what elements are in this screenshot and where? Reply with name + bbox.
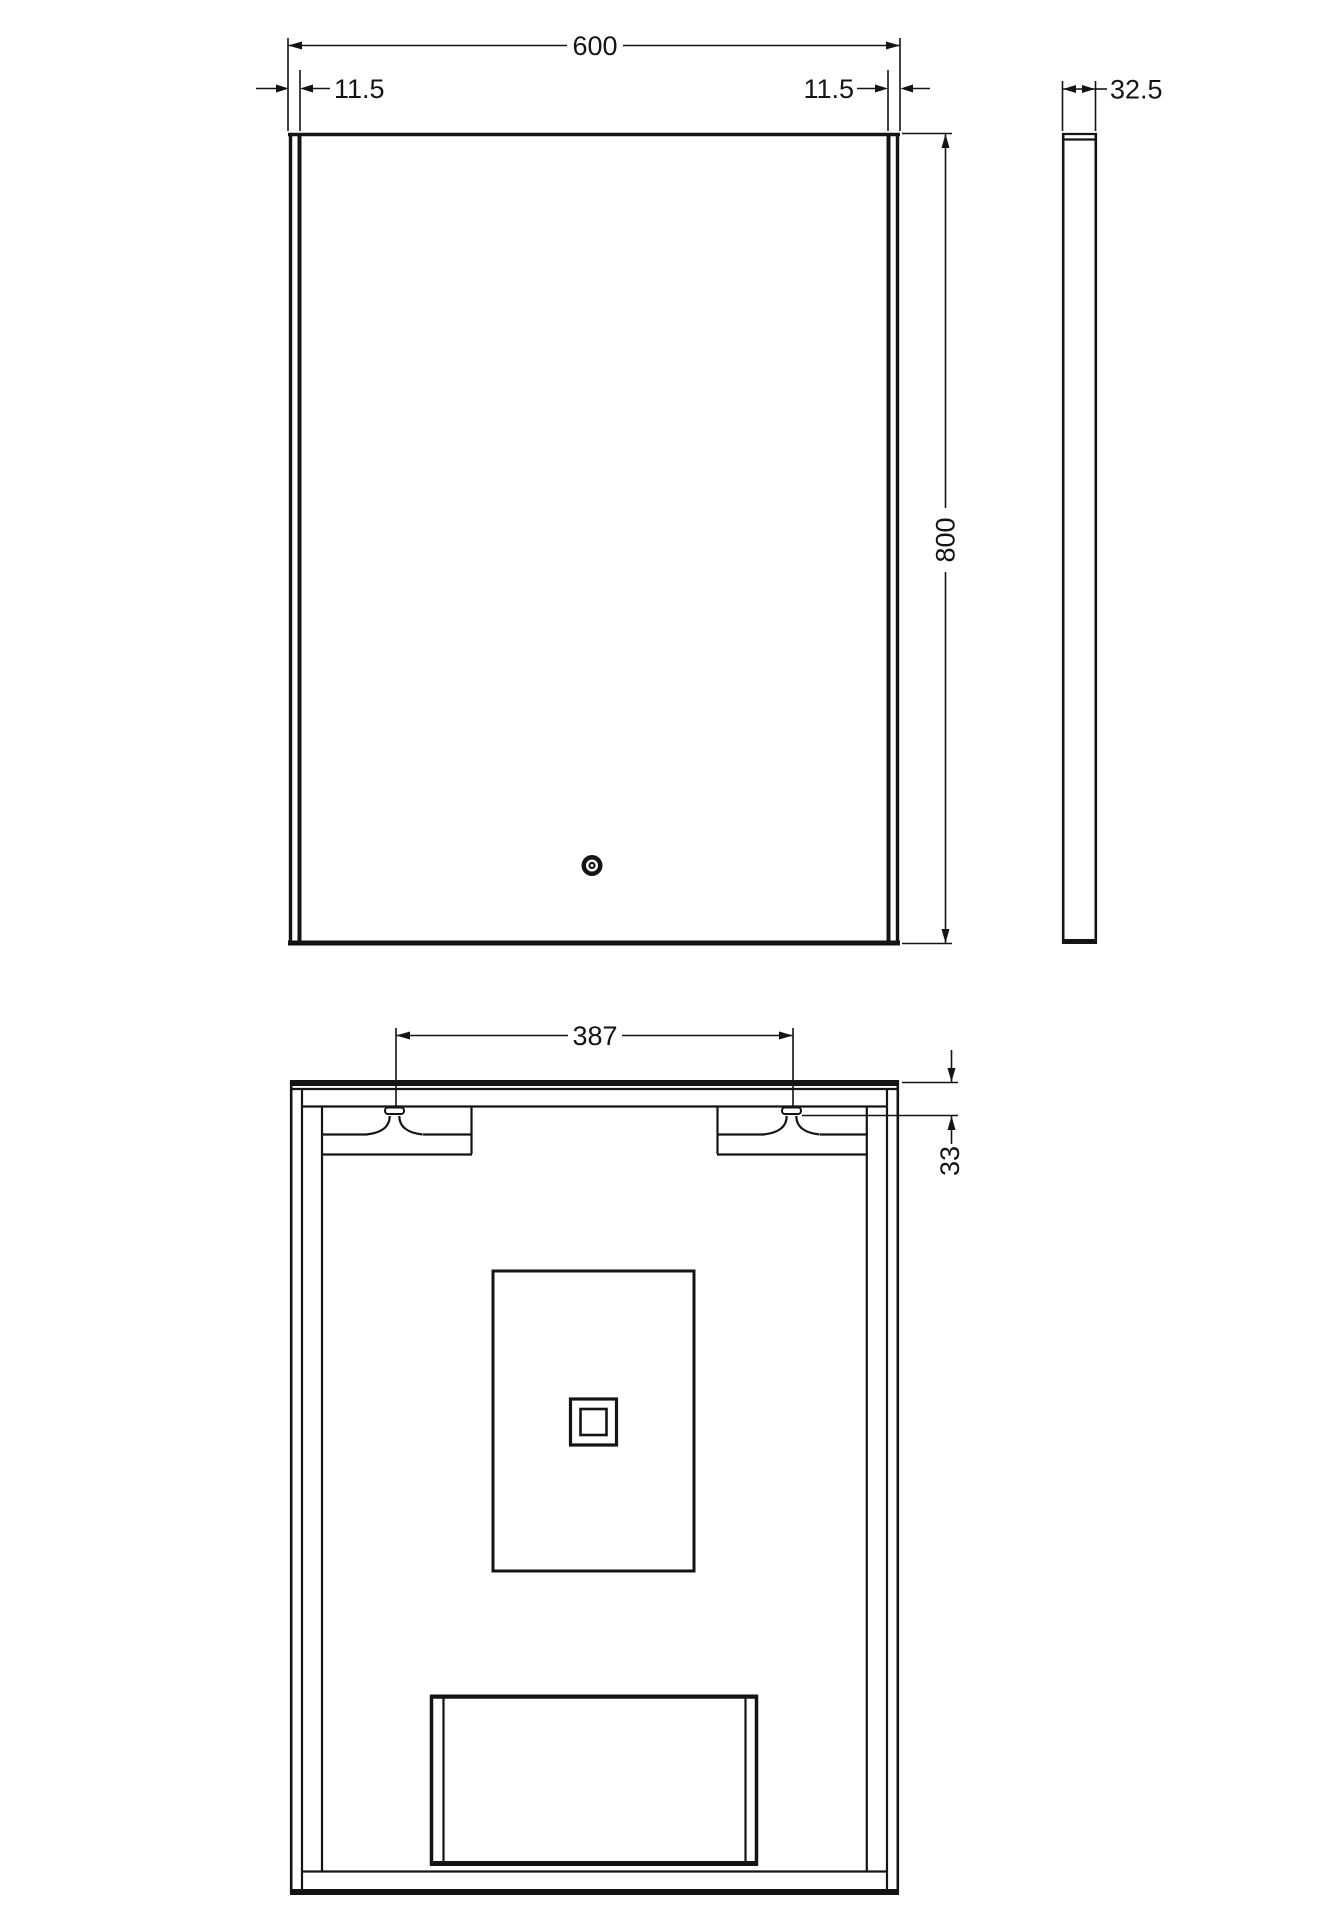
arrowhead-down — [948, 1068, 956, 1082]
bracket-plate-left — [321, 1106, 472, 1155]
back-top-bar — [290, 1080, 899, 1086]
arrowhead-left — [300, 85, 313, 93]
mirror-three-view-drawing: 600 11.5 11.5 800 — [0, 0, 1328, 1922]
arrowhead-right — [779, 1032, 793, 1040]
junction-box-outline — [493, 1271, 694, 1571]
cable-outlet-inner-square — [581, 1409, 607, 1435]
hanging-hook-icon — [764, 1108, 820, 1135]
dim-front-height: 800 — [902, 134, 961, 944]
arrowhead-left — [1063, 85, 1076, 93]
driver-box — [430, 1697, 758, 1864]
arrowhead-left — [396, 1032, 410, 1040]
front-view — [288, 133, 900, 943]
hanging-hook-icon — [367, 1108, 423, 1135]
arrowhead-left — [901, 85, 914, 93]
arrowhead-up — [948, 1116, 956, 1130]
driver-box-outline — [432, 1697, 757, 1864]
back-bottom-bar — [290, 1889, 899, 1895]
arrowhead-right — [276, 85, 289, 93]
dim-bracket-spacing: 387 — [396, 1021, 793, 1108]
dim-side-depth: 32.5 — [1063, 75, 1163, 132]
cable-outlet-outer-square — [571, 1399, 617, 1445]
dim-front-edge-right: 11.5 — [803, 70, 930, 131]
arrowhead-down — [942, 929, 950, 943]
arrowhead-left — [288, 42, 302, 50]
dim-label-bracket-spacing: 387 — [572, 1021, 617, 1051]
arrowhead-right — [1082, 85, 1095, 93]
dim-label-front-width: 600 — [572, 31, 617, 61]
dim-label-front-edge-right: 11.5 — [803, 74, 854, 104]
dim-bracket-drop: 33 — [802, 1050, 965, 1176]
back-view — [290, 1080, 899, 1895]
junction-box — [493, 1271, 694, 1571]
arrowhead-right — [875, 85, 888, 93]
arrowhead-up — [942, 134, 950, 148]
dim-label-side-depth: 32.5 — [1110, 75, 1163, 105]
bracket-plate-right — [717, 1106, 868, 1155]
side-view — [1062, 133, 1097, 943]
dim-label-front-edge-left: 11.5 — [334, 74, 385, 104]
arrowhead-right — [886, 42, 900, 50]
touch-sensor-icon — [582, 855, 603, 876]
technical-drawing-canvas: 600 11.5 11.5 800 — [0, 0, 1328, 1922]
dim-front-edge-left: 11.5 — [256, 70, 385, 131]
dim-label-bracket-drop: 33 — [935, 1146, 965, 1176]
dim-label-front-height: 800 — [931, 517, 961, 562]
